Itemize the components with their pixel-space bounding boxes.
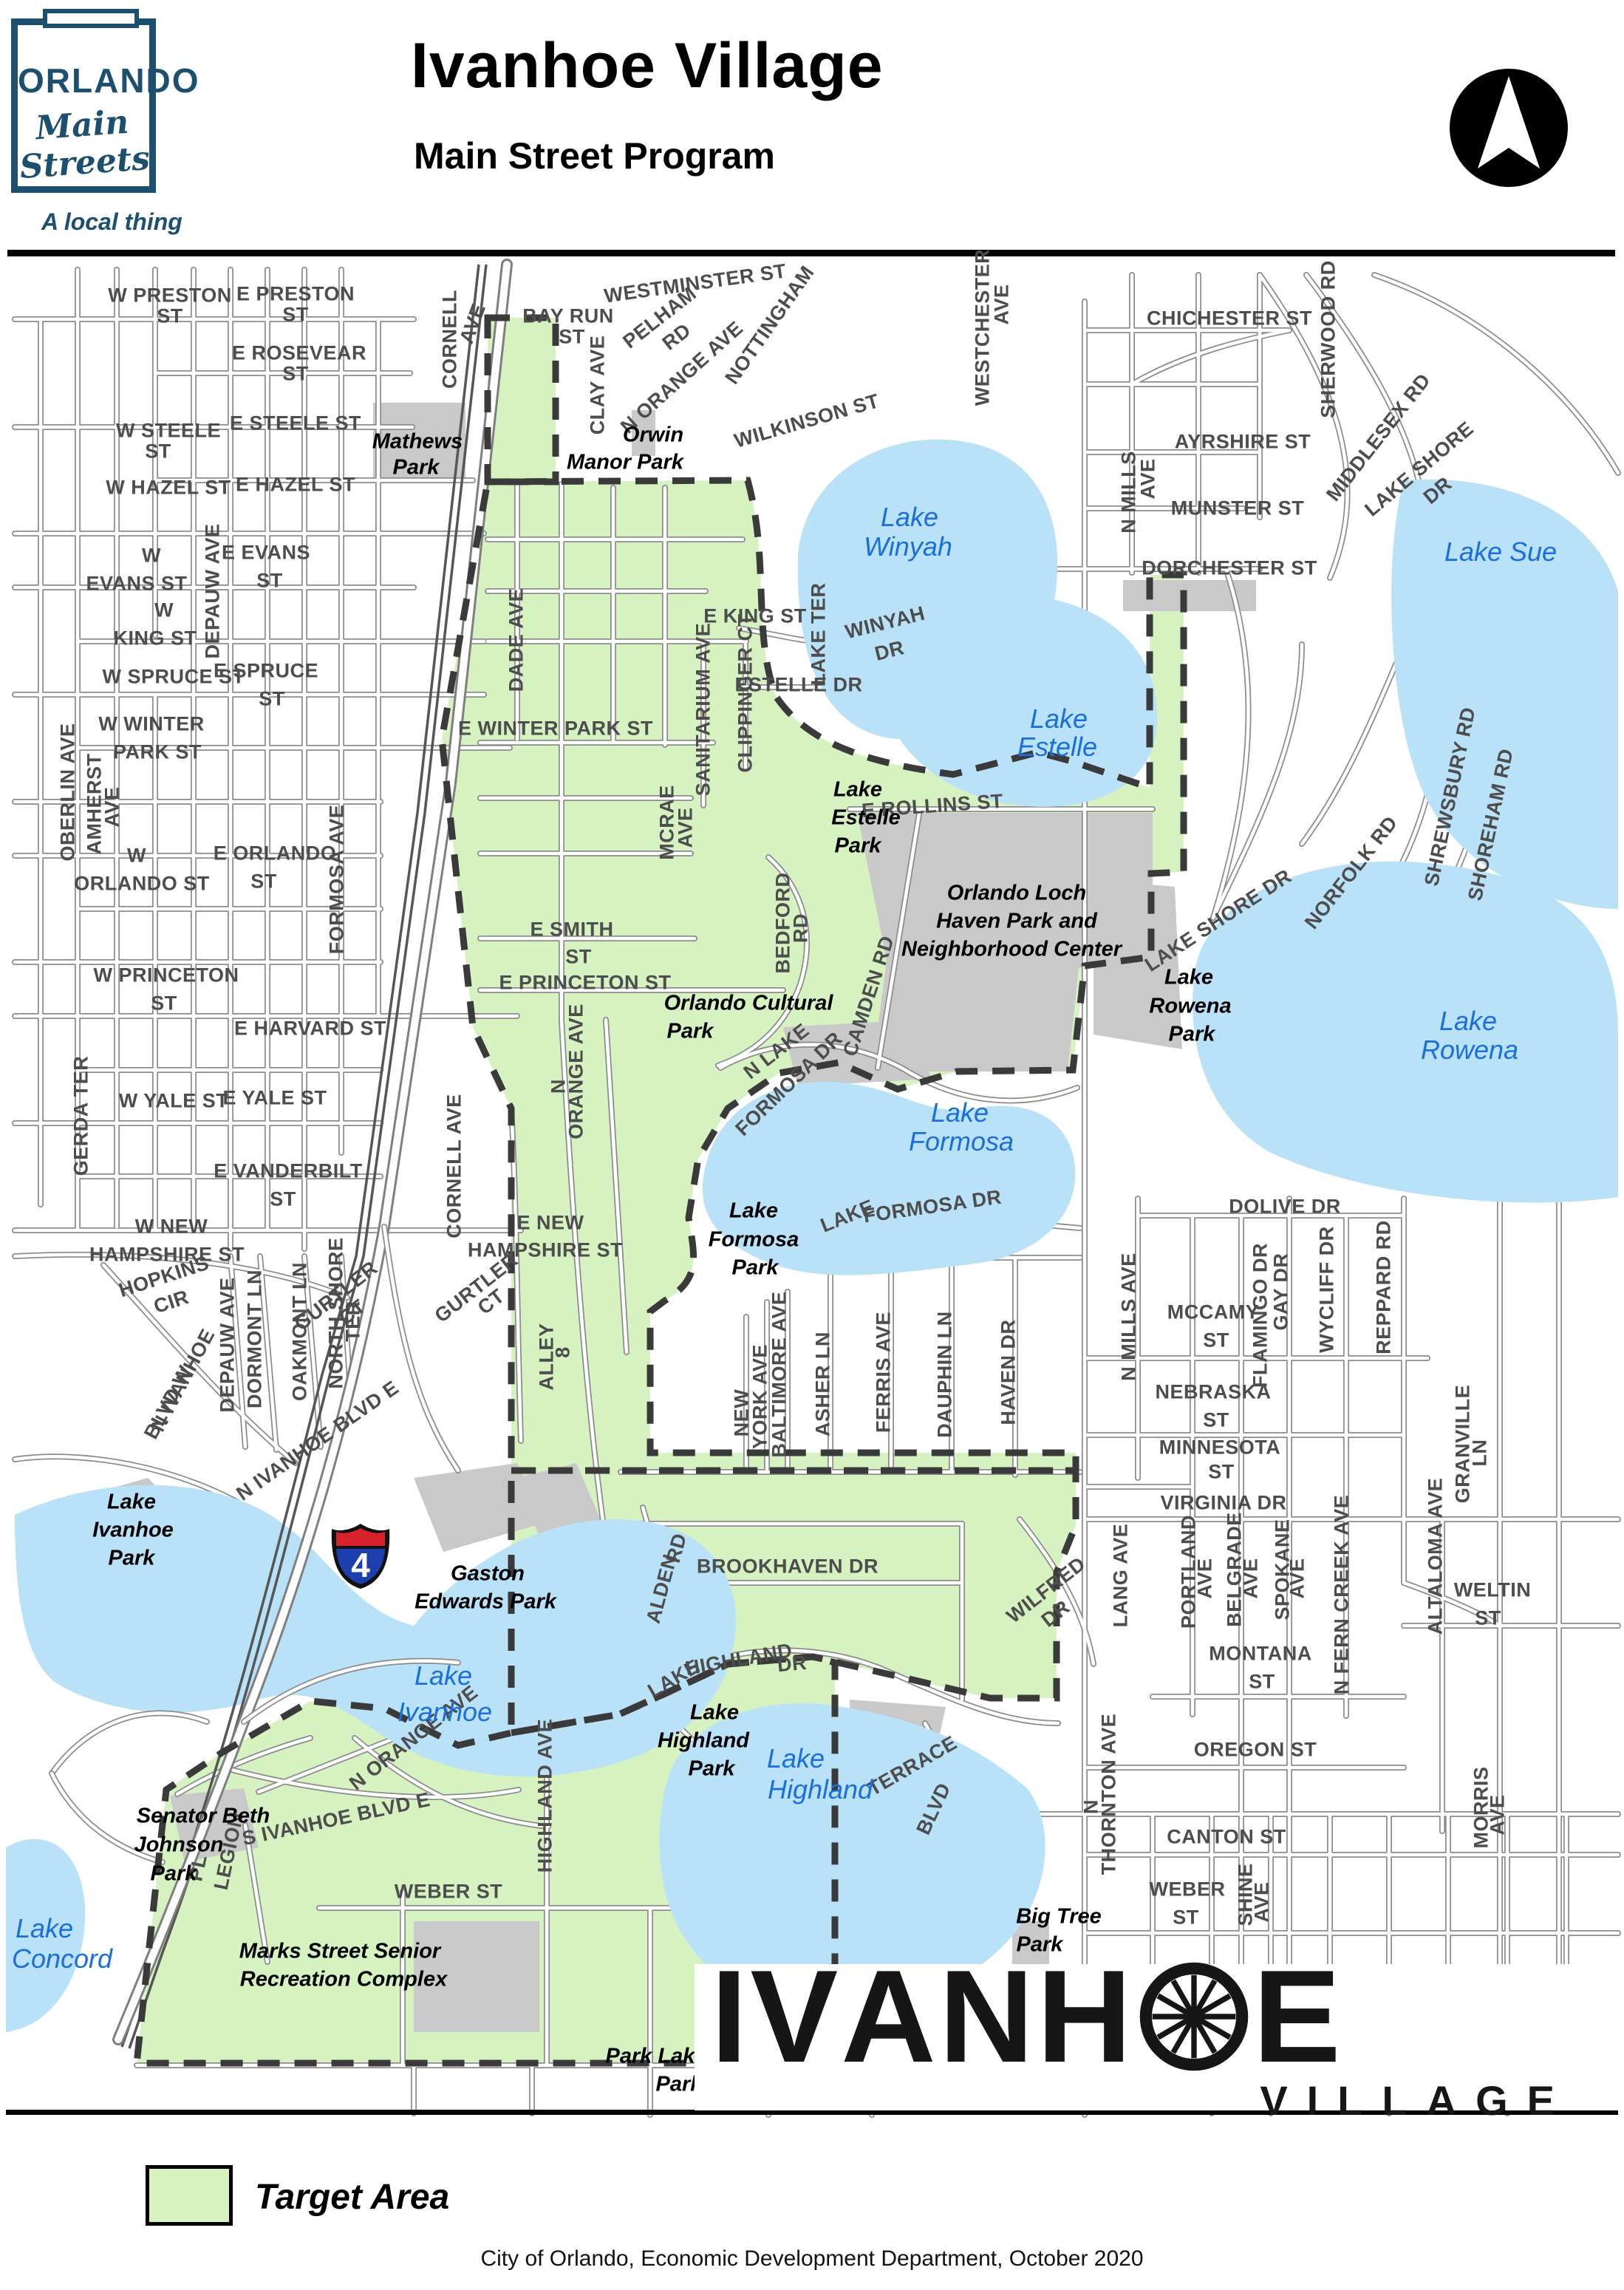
map-label: WELTIN (1454, 1579, 1531, 1602)
map-label: AVE (1487, 1794, 1509, 1835)
wordmark-sub: VILLAGE (1260, 2076, 1574, 2124)
map-label: WESTCHESTER (972, 249, 994, 406)
map-label: Recreation Complex (240, 1968, 447, 1992)
map-label: Highland (658, 1729, 749, 1754)
map-label: W (142, 545, 161, 568)
map-label: HAMPSHIRE ST (468, 1239, 623, 1262)
map-label: AVE (101, 786, 124, 827)
map-label: Park (667, 1020, 714, 1044)
map-label: ORANGE AVE (565, 1003, 588, 1139)
wordmark-letter: N (939, 1951, 1037, 2082)
map-label: ASHER LN (812, 1332, 835, 1437)
map-label: ST (250, 870, 277, 893)
map-label: Rowena (1421, 1035, 1518, 1066)
map-label: AVE (675, 807, 697, 848)
map-label: MCCAMY (1167, 1301, 1260, 1324)
legend-target-area-label: Target Area (255, 2177, 449, 2218)
map-label: Big Tree (1016, 1905, 1102, 1929)
map-label: Formosa (909, 1126, 1014, 1157)
map-label: W (127, 845, 146, 868)
map-label: MINNESOTA (1159, 1437, 1281, 1459)
map-label: Ivanhoe (92, 1519, 174, 1543)
wordmark-letter: V (750, 1951, 841, 2082)
map-label: HAMPSHIRE ST (89, 1244, 245, 1267)
map-label: OBERLIN AVE (57, 723, 80, 861)
map-label: DEPAUW AVE (216, 1277, 239, 1412)
map-label: ST (259, 688, 285, 711)
map-label: E NEW (516, 1212, 584, 1235)
map-label: LANG AVE (1110, 1524, 1133, 1628)
map-label: Lake (931, 1097, 989, 1128)
map-label: RD (790, 913, 813, 943)
map-label: GERDA TER (70, 1056, 93, 1176)
map-label: Park (1169, 1023, 1215, 1047)
map-label: VIRGINIA DR (1160, 1492, 1286, 1515)
map-label: CLIPPINGER CT (734, 613, 757, 772)
map-label: Formosa (709, 1228, 799, 1253)
map-label: WYCLIFF DR (1316, 1226, 1339, 1352)
map-label: CAMDEN RD (839, 933, 899, 1060)
map-label: HAVEN DR (997, 1319, 1020, 1425)
map-label: E STEELE ST (230, 412, 361, 435)
map-label: W STEELE (116, 420, 221, 443)
map-label: Lake (1030, 703, 1088, 735)
map-label: Ivanhoe (398, 1697, 492, 1728)
map-label: KING ST (113, 627, 197, 650)
map-label: SHOREHAM RD (1464, 746, 1518, 902)
map-label: Lake (729, 1199, 778, 1224)
map-label: MONTANA (1209, 1643, 1311, 1666)
map-label: E SPRUCE (214, 660, 318, 683)
map-label: ST (1173, 1906, 1199, 1929)
footer-credit: City of Orlando, Economic Development De… (480, 2246, 1143, 2272)
map-label: Lake (1439, 1006, 1497, 1037)
map-label: E YALE ST (222, 1087, 327, 1110)
map-label: Johnson (134, 1833, 224, 1858)
legend-target-area-swatch (146, 2165, 233, 2226)
map-label: Lake (107, 1490, 156, 1515)
map-label: PARK ST (113, 741, 202, 764)
map-label: Park (835, 834, 881, 859)
map-label: WEBER (1150, 1878, 1226, 1901)
map-label: BROOKHAVEN DR (697, 1555, 878, 1578)
map-label: SANITARIUM AVE (692, 623, 715, 797)
map-label: DEPAUW AVE (202, 523, 225, 658)
map-label: W NEW (135, 1216, 208, 1238)
map-label: Lake (414, 1660, 472, 1691)
map-label: BLVD (912, 1779, 955, 1839)
map-label: BAY RUN (522, 305, 614, 328)
map-label: N MILLS AVE (1118, 1253, 1141, 1381)
map-label: Lake (767, 1743, 825, 1774)
map-label: E VANDERBILT (214, 1160, 363, 1183)
map-label: E HAZEL ST (236, 474, 355, 497)
map-label: SHERWOOD RD (1317, 260, 1340, 418)
map-label: Edwards Park (414, 1590, 556, 1615)
map-label: WINYAH (843, 602, 927, 644)
map-label: DR (777, 1652, 808, 1677)
map-label: W PRINCETON (93, 964, 239, 987)
map-label: AVE (1240, 1558, 1263, 1598)
map-label: Haven Park and (936, 910, 1097, 934)
map-label: CORNELL AVE (443, 1094, 466, 1238)
map-label: ST (151, 992, 177, 1015)
map-label: CANTON ST (1167, 1826, 1286, 1849)
map-label: Winyah (864, 531, 952, 562)
wordmark-letters: IVANHE (711, 1951, 1344, 2082)
map-label: FERRIS AVE (873, 1312, 895, 1433)
map-label: W PRESTON (108, 284, 232, 307)
map-label: Park (689, 1757, 735, 1782)
map-label: AVE (1251, 1881, 1274, 1922)
map-label: ST (256, 570, 283, 593)
map-label: NORFOLK RD (1300, 812, 1402, 934)
map-label: E WINTER PARK ST (458, 718, 653, 740)
map-label: Estelle (1017, 732, 1097, 763)
map-label: Park Lake (605, 2045, 706, 2069)
map-label: Lake (881, 502, 938, 533)
map-label: LAKE SHORE DR (1141, 865, 1296, 976)
map-label: WILKINSON ST (731, 389, 881, 453)
map-label: Park (732, 1256, 779, 1281)
map-label: Lake (833, 778, 882, 802)
map-label: Rowena (1149, 995, 1231, 1019)
map-label: Park (109, 1547, 155, 1571)
map-label: DADE AVE (505, 588, 528, 692)
map-label: ST (282, 304, 309, 327)
page: { "header": { "logo_line1": "ORLANDO", "… (0, 0, 1624, 2290)
map-label: E PRESTON (236, 283, 355, 306)
map-label: AVE (1137, 458, 1160, 499)
map-label: Orwin (623, 423, 683, 448)
map-label: AVE (1194, 1558, 1217, 1598)
map-label: 8 (552, 1346, 575, 1358)
map-label: EVANS ST (86, 573, 187, 596)
wheel-icon (1139, 1962, 1249, 2071)
wordmark-letter: E (1253, 1951, 1344, 2082)
map-label: AYRSHIRE ST (1175, 431, 1311, 454)
map-label: ORLANDO ST (74, 873, 210, 896)
map-label: Park (393, 456, 440, 480)
map-label: Lake (690, 1701, 739, 1725)
map-label: E PRINCETON ST (499, 972, 671, 995)
ivanhoe-village-wordmark: IVANHE VILLAGE (695, 1964, 1618, 2110)
map-label: MUNSTER ST (1171, 497, 1305, 520)
map-label: AVE (991, 284, 1014, 324)
map-label: DR (873, 636, 907, 666)
map-label: Mathews (372, 430, 463, 454)
map-label: ST (157, 305, 183, 328)
map-label: E ORLANDO (214, 842, 337, 865)
map-label: FORMOSA DR (862, 1186, 1003, 1228)
map-label: Lake (16, 1913, 73, 1944)
map-label: Orlando Loch (947, 882, 1087, 906)
map-label: ST (1208, 1461, 1235, 1484)
map-label: W (154, 599, 174, 622)
map-label: ST (1475, 1607, 1501, 1630)
wordmark-letter: A (841, 1951, 939, 2082)
map-label: Neighborhood Center (901, 938, 1122, 962)
map-label: W HAZEL ST (106, 477, 231, 500)
map-label: Estelle (831, 806, 901, 831)
map-label: Marks Street Senior (239, 1940, 440, 1964)
map-label: E SMITH (530, 919, 613, 941)
map-label: Gaston (451, 1562, 525, 1587)
map-label: ST (145, 440, 171, 463)
map-label: N FERN CREEK AVE (1331, 1495, 1354, 1695)
map-label: Manor Park (567, 451, 683, 475)
map-label: FORMOSA AVE (326, 805, 349, 955)
map-label: Orlando Cultural (664, 992, 833, 1016)
wordmark-letter: H (1037, 1951, 1135, 2082)
map-label: THORNTON AVE (1098, 1714, 1121, 1875)
map-label: Senator Beth (137, 1805, 270, 1829)
map-label: DORCHESTER ST (1142, 557, 1317, 580)
map-label: LAKE TER (808, 583, 830, 686)
map-label: ALDEN (642, 1552, 683, 1626)
map-label: E EVANS (222, 542, 310, 565)
map-label: Concord (12, 1943, 112, 1974)
map-label: W YALE ST (119, 1090, 229, 1113)
map-label: WEBER ST (395, 1881, 503, 1904)
map-label: E HARVARD ST (234, 1018, 386, 1040)
map-label: W WINTER (98, 713, 204, 736)
map-label: HIGHLAND AVE (534, 1719, 557, 1873)
map-label: LN (1469, 1439, 1492, 1467)
map-label: BALTIMORE AVE (768, 1292, 791, 1458)
map-label: NEBRASKA (1155, 1381, 1271, 1404)
map-label: Park (151, 1862, 197, 1887)
map-label: ST (1249, 1671, 1275, 1694)
map-label: E ROSEVEAR (232, 342, 366, 365)
wordmark-letter: I (711, 1951, 750, 2082)
map-label: OREGON ST (1194, 1739, 1317, 1762)
map-label: DORMONT LN (244, 1270, 267, 1408)
map-label: DAUPHIN LN (934, 1311, 957, 1438)
map-label: REPPARD RD (1373, 1220, 1396, 1354)
map-label: CLAY AVE (587, 335, 610, 435)
map-label: DOLIVE DR (1229, 1196, 1341, 1219)
map-label: ST (1203, 1409, 1229, 1432)
map-label: Lake (1164, 966, 1213, 990)
map-label: Highland (768, 1774, 873, 1805)
map-label: CHICHESTER ST (1147, 307, 1312, 330)
map-label: ST (282, 363, 309, 386)
map-label: ST (565, 946, 592, 969)
map-label: ALTALOMA AVE (1425, 1478, 1447, 1635)
map-label: ST (270, 1188, 296, 1211)
map-label: ST (559, 326, 585, 349)
map-label: ST (1203, 1329, 1229, 1352)
map-label: AVE (1286, 1558, 1309, 1598)
map-label: GAY DR (1270, 1253, 1293, 1330)
map-label: Lake Sue (1444, 536, 1557, 568)
